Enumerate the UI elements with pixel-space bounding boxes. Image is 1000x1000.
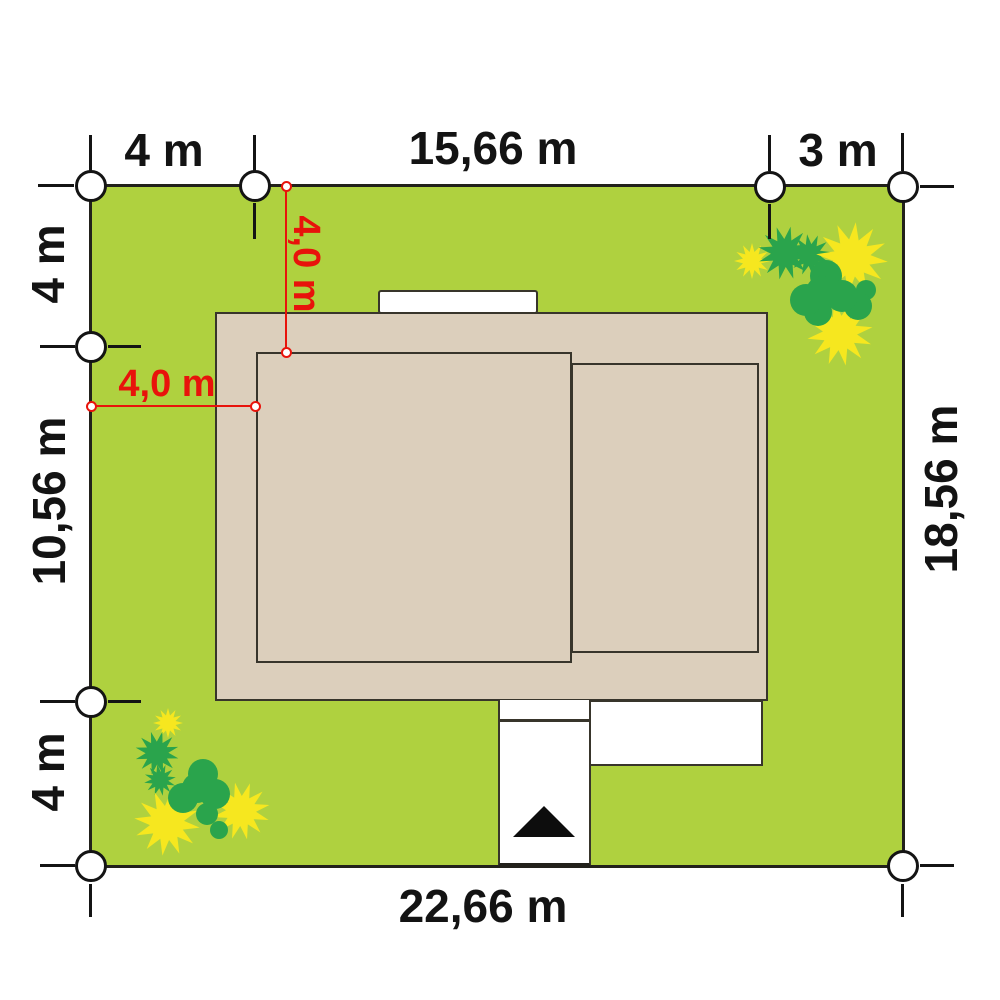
boundary-tick: [253, 203, 256, 239]
boundary-tick: [768, 204, 771, 239]
dimension-endpoint: [86, 401, 97, 412]
survey-marker: [75, 331, 107, 363]
house-footprint: [256, 352, 572, 663]
bush-icon: [806, 276, 838, 308]
survey-marker: [75, 170, 107, 202]
site-plan: 4,0 m 4,0 m 4 m 15,66 m 3 m 4 m 10,56 m …: [0, 0, 1000, 1000]
dimension-endpoint: [250, 401, 261, 412]
dimension-label-left-middle: 10,56 m: [26, 417, 72, 586]
entrance-arrow-icon: [513, 806, 575, 837]
survey-marker: [887, 171, 919, 203]
garage-footprint: [571, 363, 759, 653]
boundary-tick: [901, 133, 904, 171]
driveway: [498, 700, 591, 866]
dimension-label-bottom: 22,66 m: [399, 883, 568, 929]
chimney: [378, 290, 538, 314]
survey-marker: [75, 686, 107, 718]
boundary-tick: [768, 135, 771, 171]
dimension-label-right: 18,56 m: [918, 405, 964, 574]
survey-marker: [239, 170, 271, 202]
terrace: [589, 700, 763, 766]
boundary-tick: [89, 884, 92, 917]
boundary-tick: [920, 185, 954, 188]
bush-icon: [182, 773, 212, 803]
boundary-tick: [89, 135, 92, 171]
boundary-tick: [920, 864, 954, 867]
boundary-tick: [108, 700, 141, 703]
dimension-label-top-center: 15,66 m: [409, 125, 578, 171]
boundary-tick: [253, 135, 256, 171]
boundary-tick: [40, 864, 75, 867]
survey-marker: [75, 850, 107, 882]
dimension-endpoint: [281, 347, 292, 358]
boundary-tick: [40, 345, 75, 348]
dimension-endpoint: [281, 181, 292, 192]
dimension-label-top-right: 3 m: [798, 127, 877, 173]
survey-marker: [754, 171, 786, 203]
setback-dimension-label: 4,0 m: [118, 365, 215, 403]
survey-marker: [887, 850, 919, 882]
boundary-tick: [40, 700, 75, 703]
boundary-tick: [108, 345, 141, 348]
boundary-tick: [901, 884, 904, 917]
dimension-label-left-bottom: 4 m: [25, 732, 71, 811]
dimension-label-top-left: 4 m: [124, 127, 203, 173]
boundary-tick: [38, 184, 74, 187]
dimension-label-left-top: 4 m: [25, 224, 71, 303]
driveway-step-line: [500, 719, 589, 722]
setback-dimension-label: 4,0 m: [287, 215, 325, 312]
